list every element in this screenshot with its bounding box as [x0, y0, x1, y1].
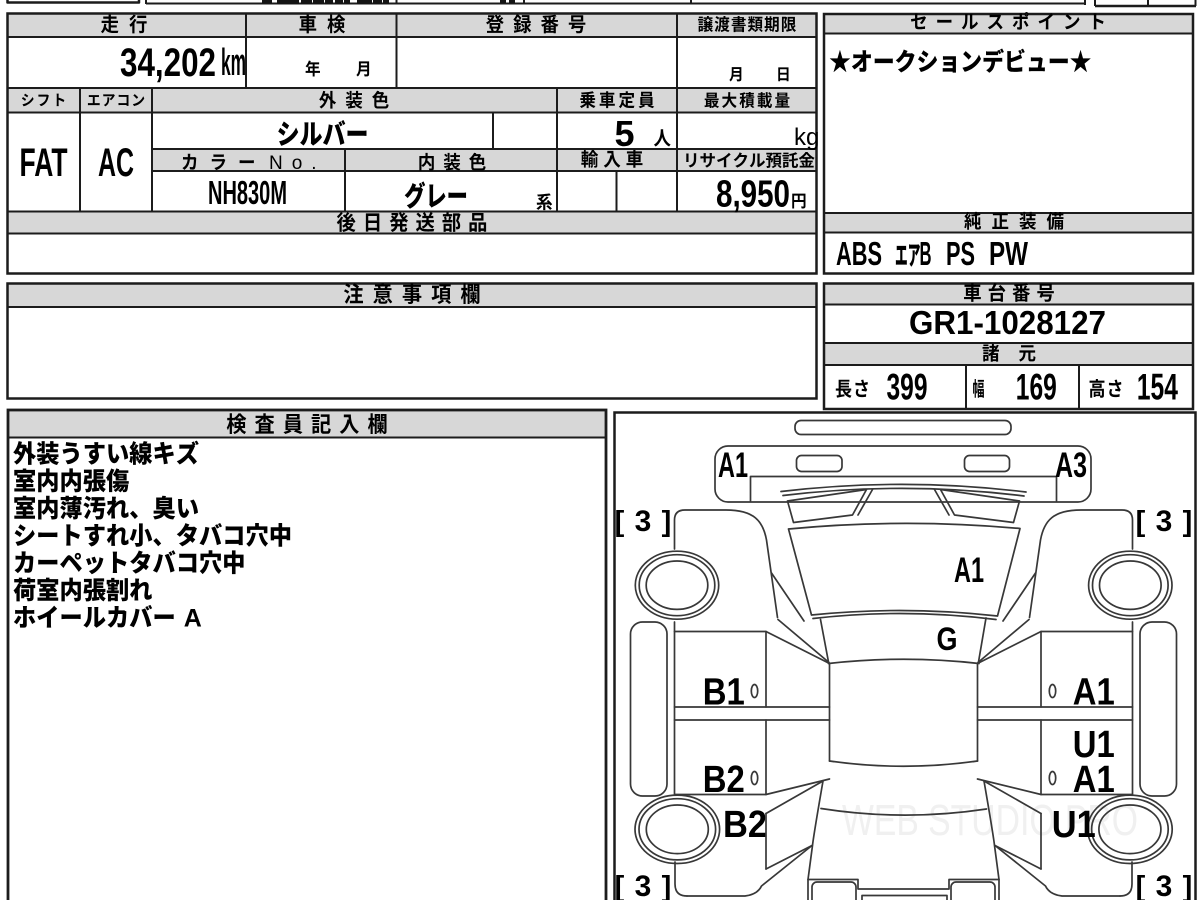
- svg-text:[: [: [615, 871, 625, 900]
- svg-text:B: B: [920, 235, 932, 272]
- svg-text:PS: PS: [946, 235, 975, 272]
- svg-text:3: 3: [635, 505, 652, 538]
- svg-text:169: 169: [1016, 367, 1057, 408]
- svg-text:A1: A1: [1073, 759, 1115, 801]
- svg-text:A1: A1: [718, 446, 748, 485]
- svg-text:B2: B2: [703, 759, 745, 801]
- svg-text:G: G: [937, 621, 958, 657]
- svg-text:]: ]: [662, 506, 672, 538]
- svg-text:[: [: [615, 506, 625, 538]
- svg-text:3: 3: [1156, 505, 1173, 538]
- svg-text:AC: AC: [98, 141, 134, 185]
- svg-text:A1: A1: [1073, 672, 1115, 714]
- svg-text:NH830M: NH830M: [208, 174, 287, 211]
- svg-text:A3: A3: [1055, 446, 1087, 485]
- svg-text:B2: B2: [723, 804, 767, 846]
- svg-text:B1: B1: [703, 672, 745, 714]
- svg-text:[: [: [1136, 506, 1146, 538]
- svg-text:km: km: [221, 42, 246, 84]
- svg-text:]: ]: [662, 871, 672, 900]
- svg-text:3: 3: [1156, 870, 1173, 900]
- svg-text:A1: A1: [954, 551, 984, 590]
- svg-text:FAT: FAT: [20, 141, 68, 185]
- svg-text:U1: U1: [1052, 804, 1096, 846]
- svg-text:154: 154: [1137, 367, 1178, 408]
- svg-text:34,202: 34,202: [120, 41, 216, 85]
- svg-text:kg: kg: [794, 124, 819, 151]
- svg-text:GR1-1028127: GR1-1028127: [909, 304, 1106, 341]
- svg-text:PW: PW: [989, 235, 1029, 272]
- svg-text:3: 3: [635, 870, 652, 900]
- svg-text:]: ]: [1183, 506, 1193, 538]
- svg-text:5: 5: [614, 113, 634, 154]
- svg-text:ABS: ABS: [836, 235, 882, 272]
- svg-text:No.: No.: [269, 153, 326, 174]
- svg-text:[: [: [1136, 871, 1146, 900]
- svg-text:A: A: [184, 604, 202, 632]
- svg-text:]: ]: [1183, 871, 1193, 900]
- svg-text:8,950: 8,950: [716, 174, 790, 216]
- svg-text:399: 399: [887, 367, 928, 408]
